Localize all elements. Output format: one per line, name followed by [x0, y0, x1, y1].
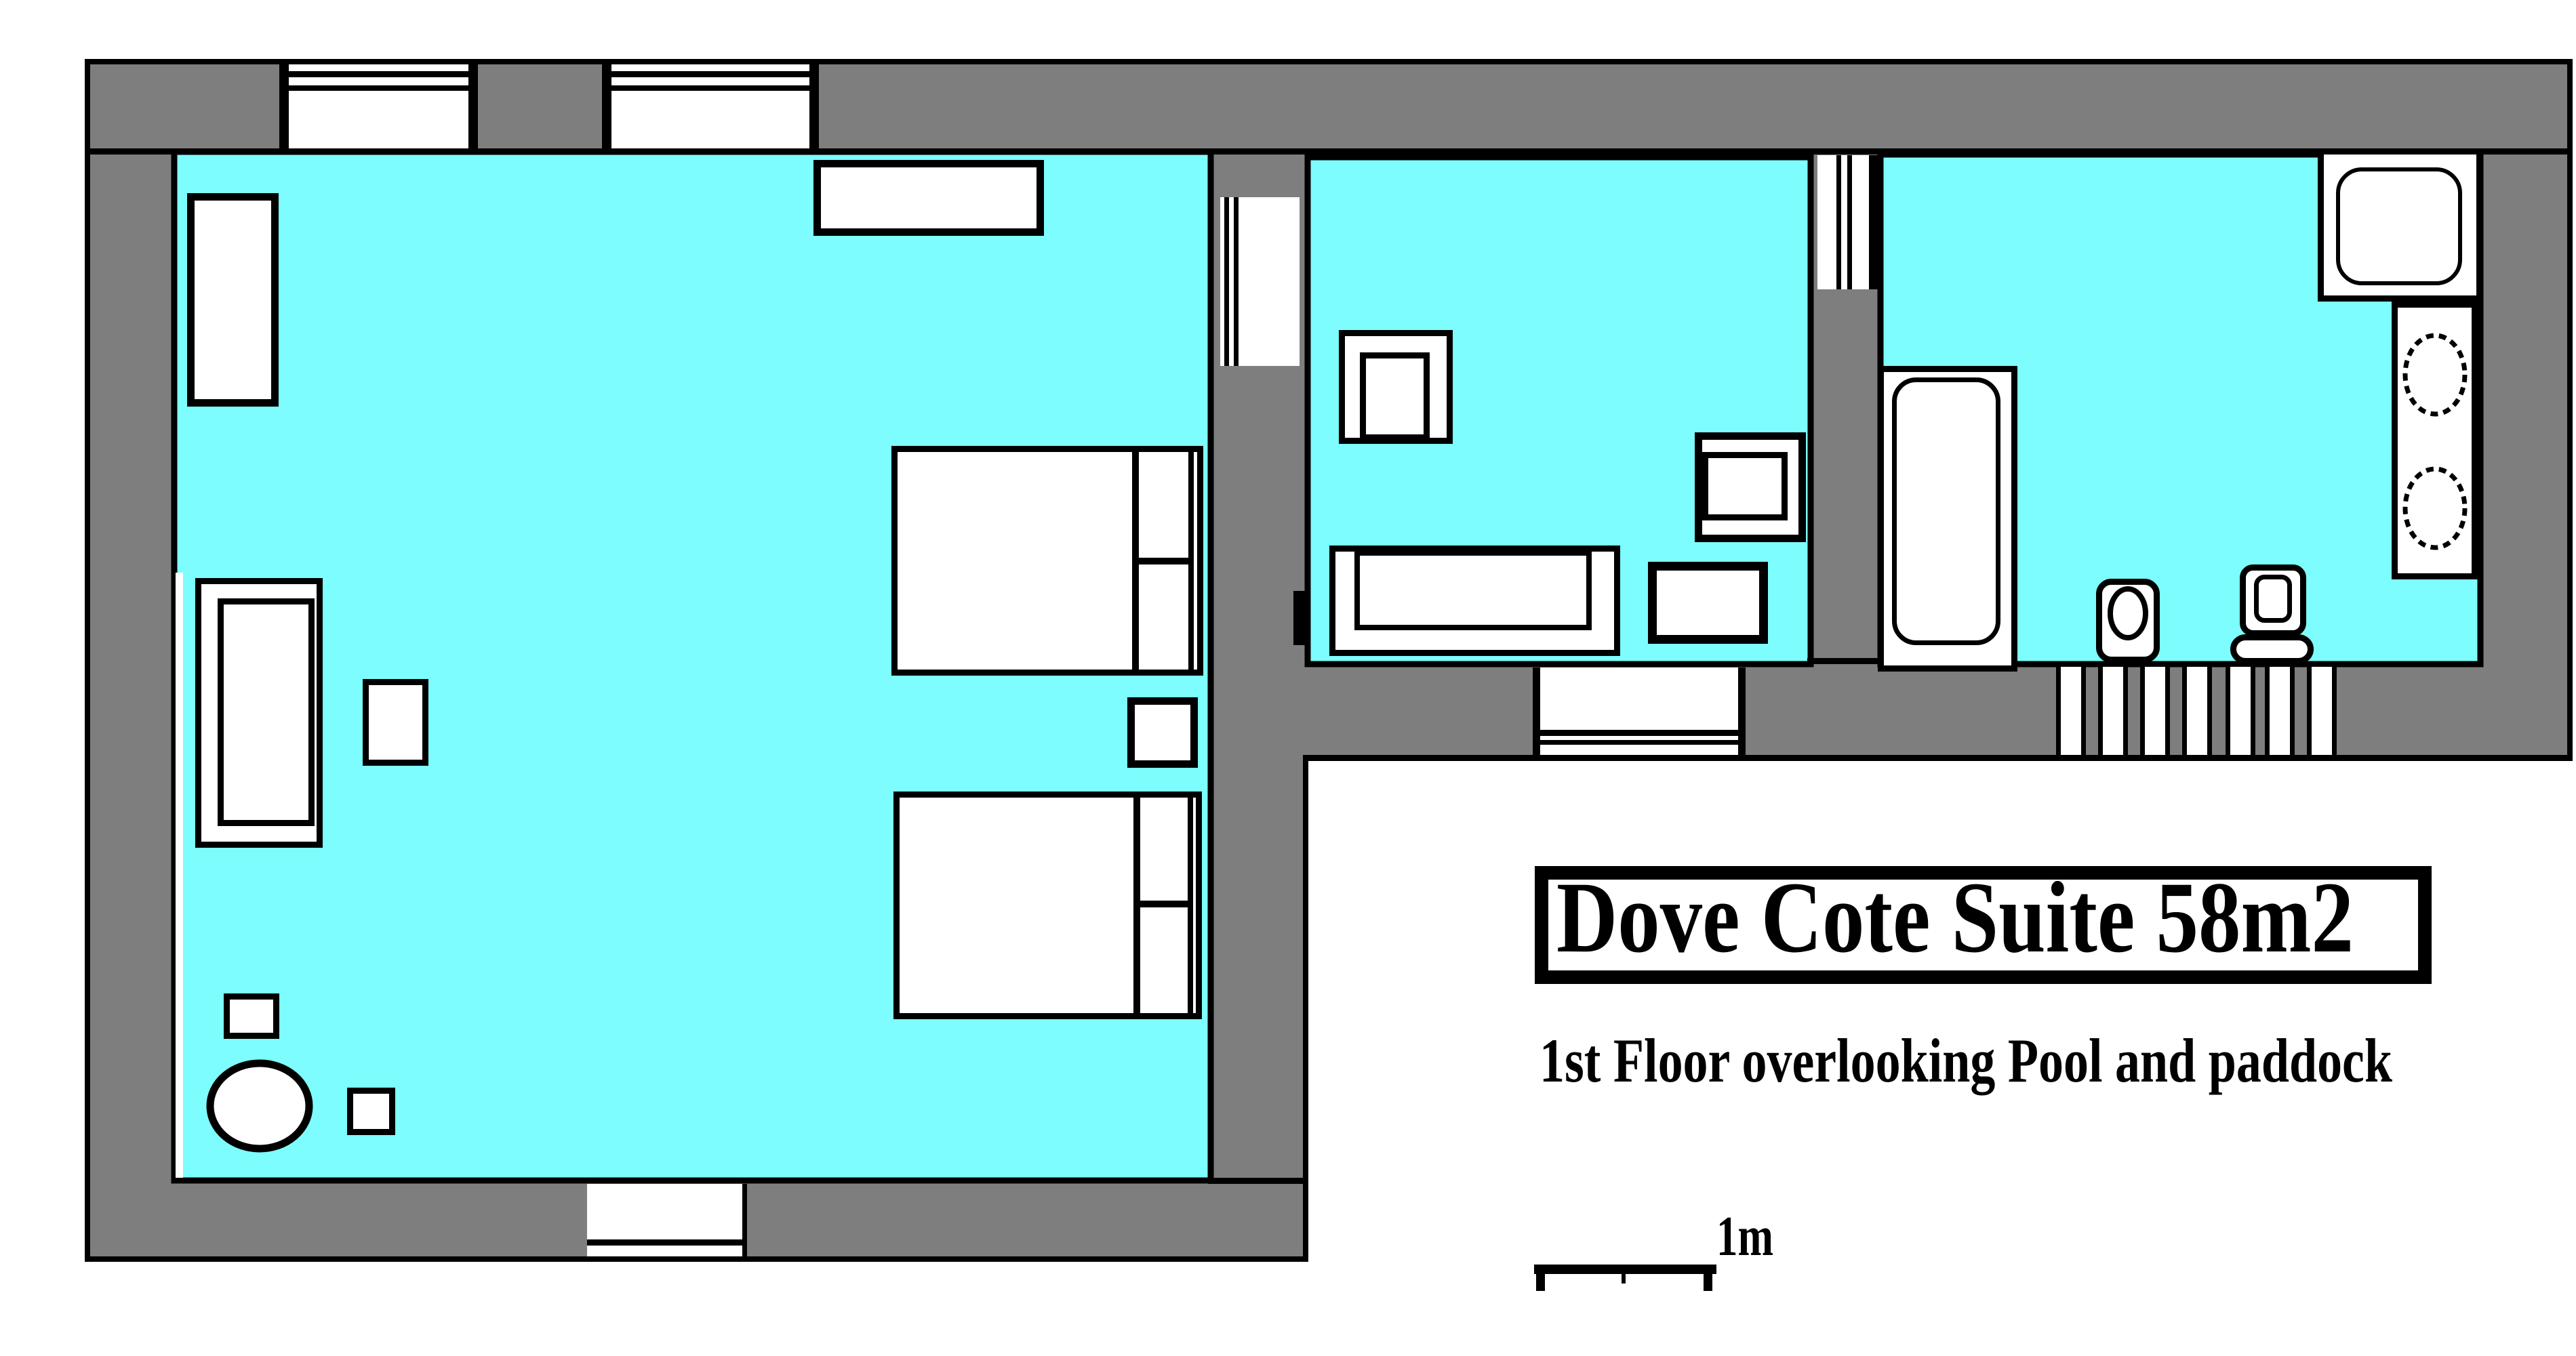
svg-text:Dove Cote Suite 58m2: Dove Cote Suite 58m2 [1556, 861, 2354, 974]
svg-text:1st Floor overlooking Pool and: 1st Floor overlooking Pool and paddock [1539, 1026, 2393, 1095]
svg-text:1m: 1m [1716, 1205, 1773, 1268]
